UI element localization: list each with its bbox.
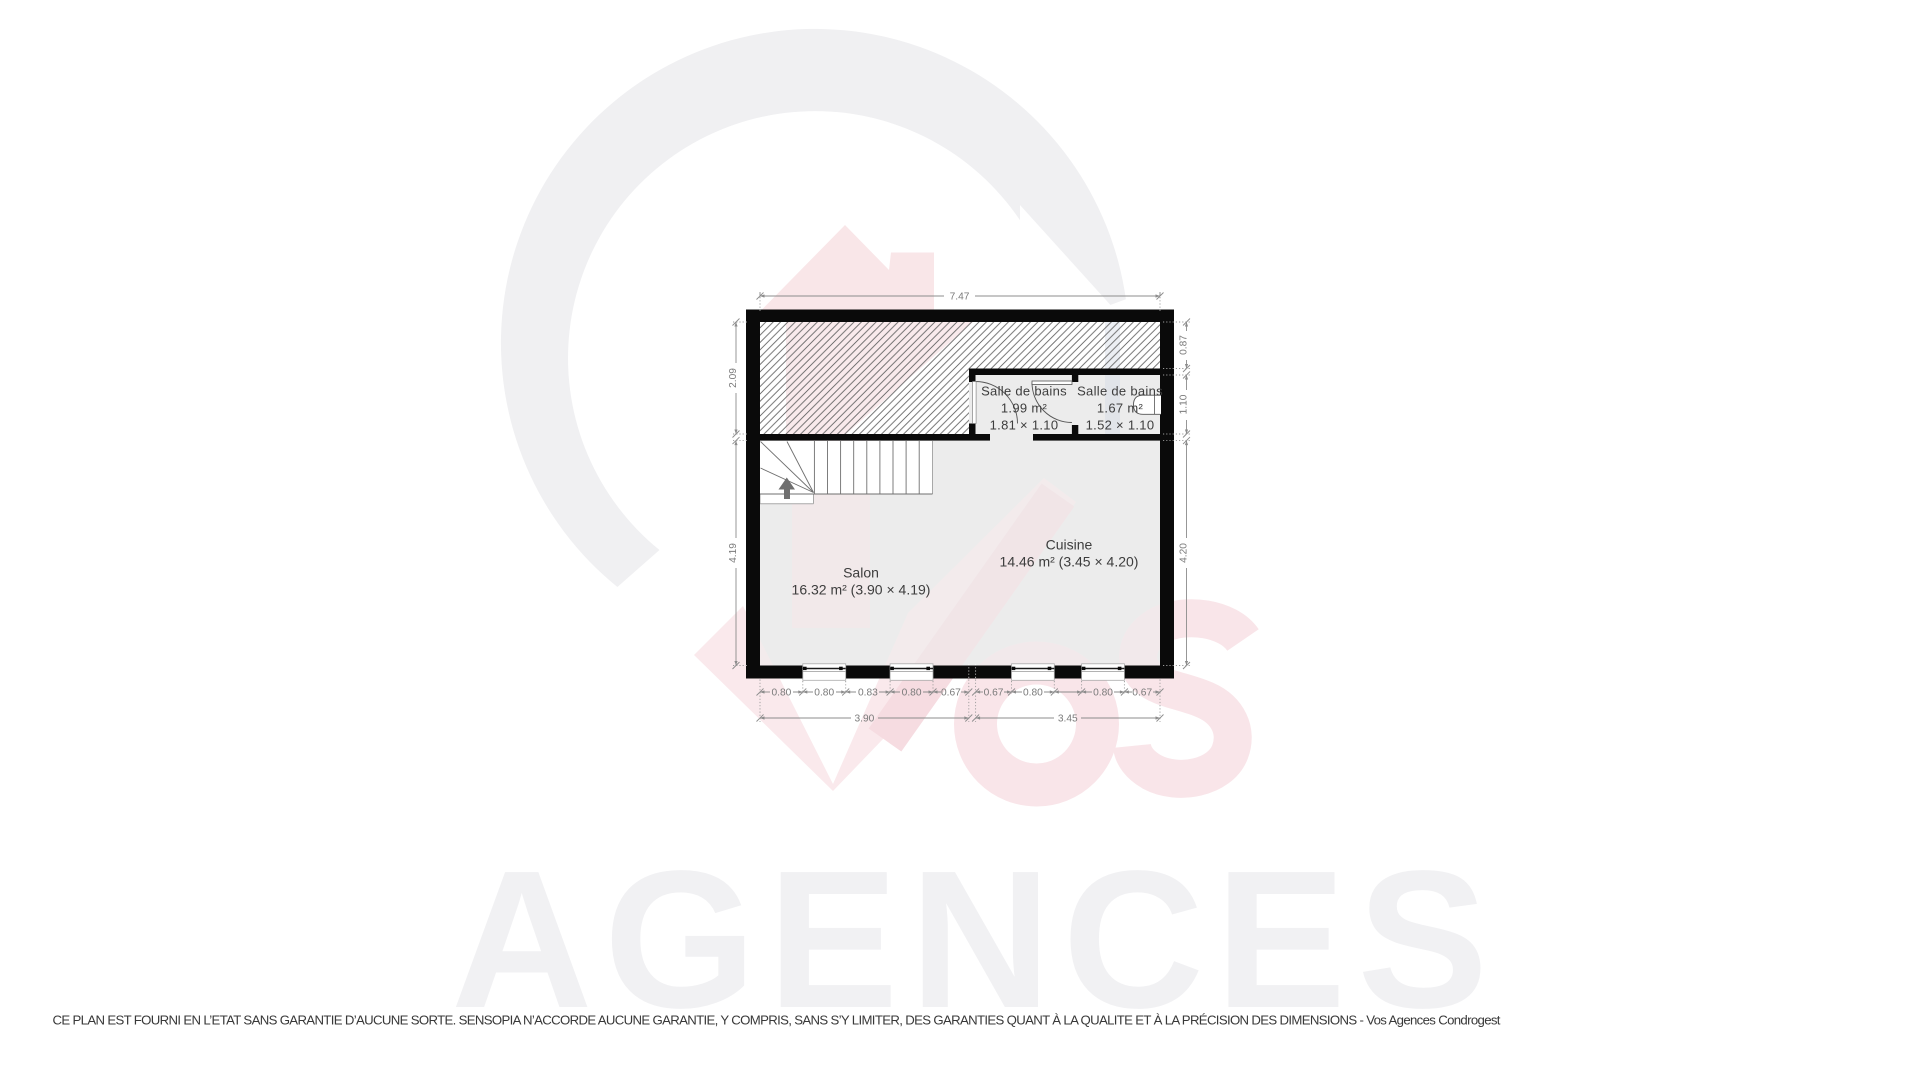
svg-text:0.80: 0.80 [1093,688,1113,699]
svg-text:1.67 m²: 1.67 m² [1097,401,1144,416]
svg-text:4.19: 4.19 [728,543,739,563]
svg-text:3.45: 3.45 [1058,714,1078,725]
svg-text:1.99 m²: 1.99 m² [1001,401,1048,416]
svg-text:16.32 m² (3.90 × 4.19): 16.32 m² (3.90 × 4.19) [792,582,931,598]
svg-text:1.81 × 1.10: 1.81 × 1.10 [990,418,1059,433]
svg-text:Salon: Salon [843,565,879,581]
svg-text:0.67: 0.67 [984,688,1004,699]
svg-text:0.67: 0.67 [1132,688,1152,699]
svg-text:0.67: 0.67 [941,688,961,699]
svg-text:1.52 × 1.10: 1.52 × 1.10 [1086,418,1155,433]
svg-text:0.80: 0.80 [902,688,922,699]
svg-text:0.80: 0.80 [814,688,834,699]
svg-text:0.80: 0.80 [1023,688,1043,699]
svg-text:Salle de bains: Salle de bains [981,384,1067,399]
svg-text:0.80: 0.80 [771,688,791,699]
svg-text:7.47: 7.47 [950,292,970,303]
svg-text:Cuisine: Cuisine [1046,537,1093,553]
svg-text:0.83: 0.83 [858,688,878,699]
svg-text:0.87: 0.87 [1179,335,1190,355]
svg-text:1.10: 1.10 [1179,394,1190,414]
svg-text:14.46 m² (3.45 × 4.20): 14.46 m² (3.45 × 4.20) [1000,554,1139,570]
svg-text:CE PLAN EST FOURNI EN L’ETAT S: CE PLAN EST FOURNI EN L’ETAT SANS GARANT… [53,1013,1501,1028]
svg-text:2.09: 2.09 [728,368,739,388]
svg-text:4.20: 4.20 [1179,543,1190,563]
svg-text:3.90: 3.90 [854,714,874,725]
svg-text:Salle de bains: Salle de bains [1077,384,1163,399]
